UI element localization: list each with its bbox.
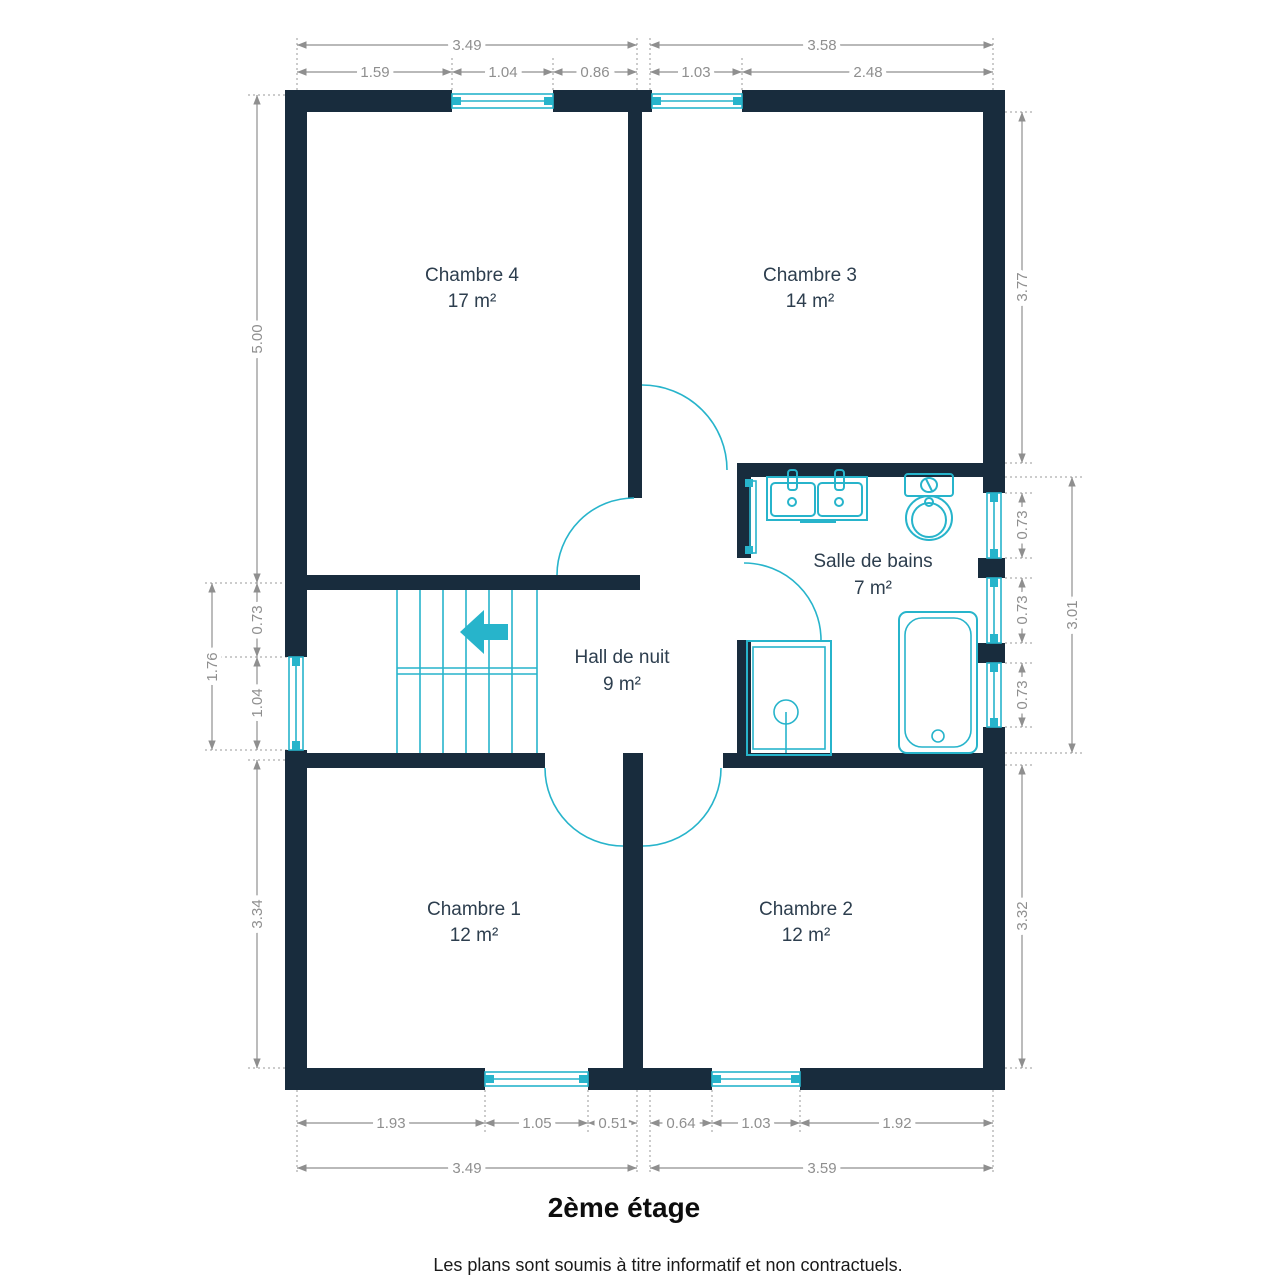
wall-exterior-top-3 [742, 90, 1005, 112]
stairs-direction-arrow-icon [460, 610, 508, 654]
dim-top-outer-right: 3.58 [807, 37, 836, 54]
dim-left-inner-1: 5.00 [249, 324, 266, 353]
door-arc-chambre4 [557, 498, 634, 575]
dim-top-inner-2: 1.04 [488, 64, 517, 81]
dim-top-inner-5: 2.48 [853, 64, 882, 81]
wall-exterior-right-4 [983, 727, 1005, 1090]
plan-title: 2ème étage [548, 1192, 701, 1223]
window-right-1 [987, 493, 1001, 558]
room-label-chambre2: Chambre 2 [759, 899, 853, 920]
dim-left-outer: 1.76 [204, 652, 221, 681]
wall-interior-hall-top [285, 575, 640, 590]
wall-exterior-top-1 [285, 90, 452, 112]
room-label-chambre4: Chambre 4 [425, 265, 519, 286]
door-arc-chambre2 [643, 768, 721, 846]
floor-plan-page: 3.49 3.58 1.59 1.04 0.86 1.03 2.48 1.93 … [0, 0, 1280, 1280]
dim-top-inner-4: 1.03 [681, 64, 710, 81]
dim-top-inner-3: 0.86 [580, 64, 609, 81]
room-label-salle-de-bains: Salle de bains [813, 551, 932, 572]
bathroom-fixtures [745, 470, 977, 755]
dim-left-inner-3: 1.04 [249, 688, 266, 717]
dim-bottom-outer-left: 3.49 [452, 1160, 481, 1177]
wall-exterior-right-3 [978, 643, 1005, 663]
wall-interior-hall-bottom-left [290, 753, 545, 768]
dim-right-inner-4: 0.73 [1014, 680, 1031, 709]
dim-bottom-inner-5: 1.03 [741, 1115, 770, 1132]
dim-top-inner-1: 1.59 [360, 64, 389, 81]
wall-interior-bathroom-left-upper [737, 477, 751, 558]
dim-top-outer-left: 3.49 [452, 37, 481, 54]
extension-lines [205, 38, 1082, 1175]
dim-left-inner-4: 3.34 [249, 899, 266, 928]
doors [545, 385, 821, 846]
window-top-1 [452, 94, 553, 108]
dim-right-inner-2: 0.73 [1014, 510, 1031, 539]
dim-bottom-inner-3: 0.51 [598, 1115, 627, 1132]
wall-exterior-bottom-3 [800, 1068, 1005, 1090]
room-label-chambre1: Chambre 1 [427, 899, 521, 920]
room-area-hall-de-nuit: 9 m² [603, 674, 641, 695]
floor-plan: 3.49 3.58 1.59 1.04 0.86 1.03 2.48 1.93 … [0, 0, 1280, 1280]
wall-exterior-left-1 [285, 90, 307, 657]
dim-left-inner-2: 0.73 [249, 605, 266, 634]
plan-disclaimer: Les plans sont soumis à titre informatif… [433, 1255, 902, 1275]
dim-right-inner-3: 0.73 [1014, 595, 1031, 624]
dim-bottom-inner-4: 0.64 [666, 1115, 695, 1132]
wall-exterior-top-2 [553, 90, 652, 112]
room-labels: Chambre 4 17 m² Chambre 3 14 m² Salle de… [425, 265, 933, 946]
walls [285, 90, 1005, 1090]
dim-right-outer: 3.01 [1064, 600, 1081, 629]
wall-interior-hall-bottom-pier [623, 753, 643, 768]
window-left-stairs [289, 657, 303, 750]
dim-bottom-inner-1: 1.93 [376, 1115, 405, 1132]
room-area-salle-de-bains: 7 m² [854, 578, 892, 599]
dim-right-inner-1: 3.77 [1014, 272, 1031, 301]
room-area-chambre3: 14 m² [786, 291, 835, 312]
wall-interior-bathroom-left-lower [737, 640, 751, 753]
dim-right-inner-5: 3.32 [1014, 901, 1031, 930]
wall-exterior-left-2 [285, 750, 307, 1090]
toilet-icon [905, 474, 953, 540]
room-label-chambre3: Chambre 3 [763, 265, 857, 286]
room-area-chambre2: 12 m² [782, 925, 831, 946]
window-top-2 [652, 94, 742, 108]
window-right-2 [987, 578, 1001, 643]
double-sink-icon [767, 470, 867, 523]
wall-exterior-right-1 [983, 90, 1005, 493]
window-bottom-2 [712, 1072, 800, 1086]
room-label-hall-de-nuit: Hall de nuit [574, 647, 670, 668]
door-arc-chambre3 [642, 385, 727, 470]
dim-bottom-outer-right: 3.59 [807, 1160, 836, 1177]
dim-bottom-inner-6: 1.92 [882, 1115, 911, 1132]
wall-exterior-right-2 [978, 558, 1005, 578]
wall-interior-chambre4-chambre3 [628, 112, 642, 498]
room-area-chambre1: 12 m² [450, 925, 499, 946]
dim-bottom-inner-2: 1.05 [522, 1115, 551, 1132]
shower-icon [747, 641, 831, 755]
window-right-3 [987, 663, 1001, 727]
door-arc-chambre1 [545, 768, 623, 846]
door-arc-bathroom [744, 563, 821, 640]
room-area-chambre4: 17 m² [448, 291, 497, 312]
stairs [397, 590, 537, 753]
window-bottom-1 [485, 1072, 588, 1086]
bathtub-icon [899, 612, 977, 753]
wall-interior-chambre1-chambre2 [623, 768, 643, 1068]
wall-exterior-bottom-1 [285, 1068, 485, 1090]
wall-exterior-bottom-2 [588, 1068, 712, 1090]
